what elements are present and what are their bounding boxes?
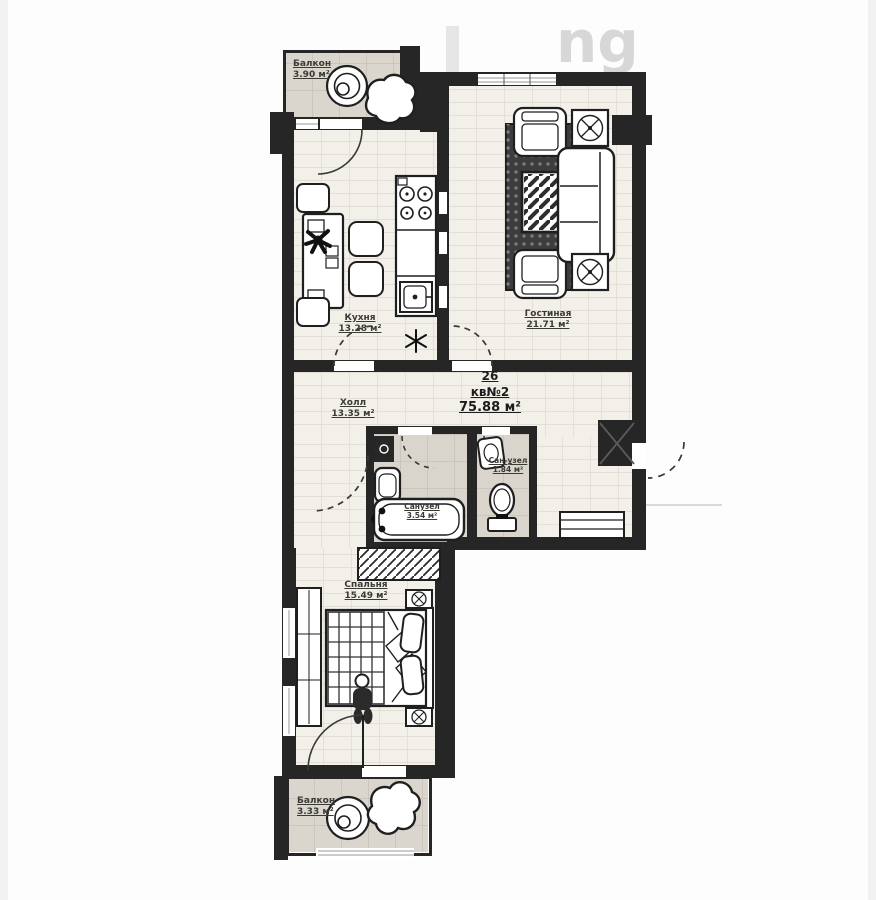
balcony-bottom-name: Балкон [297, 796, 357, 807]
balcony-top-label: Балкон 3.90 м² [293, 59, 353, 82]
bedroom-window-2-opening [283, 686, 295, 736]
balcony-bottom-label: Балкон 3.33 м² [297, 796, 357, 819]
wc-area: 1.84 м² [484, 465, 532, 474]
wc-door-opening [482, 427, 510, 435]
balcony-top-area: 3.90 м² [293, 70, 353, 81]
divider-niche-3 [439, 286, 447, 308]
apartment-block: 26 [440, 369, 540, 385]
wc-label: Сан-узел 1.84 м² [484, 456, 532, 475]
hall-corridor-floor [294, 437, 368, 548]
kitchen-name: Кухня [325, 313, 395, 324]
hall-label: Холл 13.35 м² [318, 398, 388, 421]
bedroom-window-1-opening [283, 608, 295, 658]
watermark-text: ng [556, 8, 639, 76]
watermark-bar [446, 26, 459, 72]
wall-balcony-top-column [400, 46, 420, 122]
divider-niche-2 [439, 232, 447, 254]
wall-hall-bottom [447, 537, 646, 550]
kitchen-window-opening [296, 119, 318, 129]
balcony-bottom-window-opening [316, 848, 414, 858]
bathroom-door-opening [398, 427, 432, 435]
bedroom-area: 15.49 м² [330, 591, 402, 602]
entry-door-swing [648, 442, 684, 478]
balcony-top-door-opening [320, 119, 362, 129]
entry-door-opening [632, 443, 646, 469]
wall-bedroom-right [435, 548, 455, 777]
bedroom-name: Спальня [330, 580, 402, 591]
wall-step-topright [612, 115, 652, 145]
living-window-opening [478, 74, 556, 85]
wall-bedroom-left [282, 548, 296, 777]
divider-niche-1 [439, 192, 447, 214]
hall-area: 13.35 м² [318, 409, 388, 420]
wc-name: Сан-узел [484, 456, 532, 465]
wall-bath-wc-divider [467, 434, 477, 542]
bathroom-area: 3.54 м² [392, 511, 452, 520]
apartment-area: 75.88 м² [440, 400, 540, 417]
wall-entry-shaft [598, 420, 636, 466]
right-edge-shade [868, 0, 876, 900]
left-edge-shade [0, 0, 8, 900]
wall-kitchen-living-divider [437, 86, 449, 372]
apartment-label: 26 кв№2 75.88 м² [440, 369, 540, 417]
kitchen-area: 13.28 м² [325, 324, 395, 335]
balcony-top-name: Балкон [293, 59, 353, 70]
living-room-name: Гостиная [506, 309, 590, 320]
kitchen-door-opening [334, 361, 374, 371]
hall-name: Холл [318, 398, 388, 409]
wall-bathroom-block [366, 426, 537, 550]
living-room-area: 21.71 м² [506, 320, 590, 331]
living-room-label: Гостиная 21.71 м² [506, 309, 590, 332]
balcony-bottom-area: 3.33 м² [297, 807, 357, 818]
wall-entry-right-lower [632, 469, 646, 541]
wall-kitchen-left [282, 130, 294, 372]
wall-hall-left [282, 372, 294, 548]
floorplan-canvas: ng [0, 0, 876, 900]
apartment-unit: кв№2 [440, 385, 540, 401]
bathroom-name: Санузел [392, 502, 452, 511]
kitchen-label: Кухня 13.28 м² [325, 313, 395, 336]
balcony-bottom-door-opening [362, 766, 406, 777]
bathroom-label: Санузел 3.54 м² [392, 502, 452, 521]
bedroom-label: Спальня 15.49 м² [330, 580, 402, 603]
